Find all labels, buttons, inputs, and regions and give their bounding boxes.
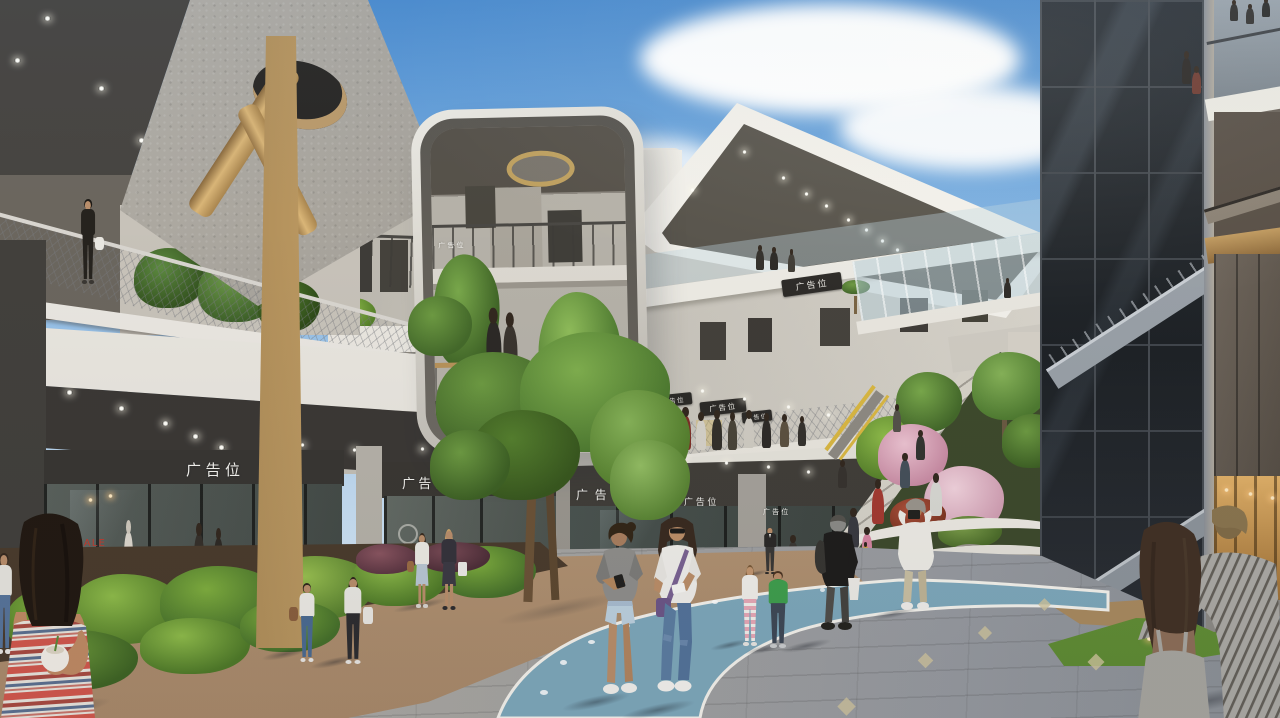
- window: [748, 318, 772, 352]
- downlight-icon: [700, 389, 705, 393]
- window-shopper: [410, 534, 434, 608]
- downlight-icon: [806, 470, 811, 474]
- pedestrian-woman-grey-top: [588, 520, 652, 702]
- ad-sign: 广告位: [438, 240, 466, 251]
- downlight-icon: [804, 192, 809, 196]
- downlight-icon: [98, 86, 105, 91]
- pedestrian-woman-white-top: [644, 514, 710, 714]
- downlight-icon: [826, 413, 831, 417]
- tower-person: [1192, 72, 1201, 94]
- path-speckle: [560, 660, 567, 665]
- balcony-person: [712, 418, 722, 450]
- balcony-person: [762, 420, 771, 448]
- downlight-icon: [192, 434, 199, 439]
- downlight-icon: [420, 447, 425, 451]
- ad-sign: 广告位: [684, 495, 719, 508]
- balcony-person: [696, 420, 706, 450]
- stair-person: [872, 488, 884, 524]
- foreground-couple: [1126, 498, 1280, 718]
- balcony-person: [728, 420, 737, 450]
- warm-downlight-icon: [1248, 492, 1253, 496]
- pedestrian: [294, 584, 320, 662]
- downlight-icon: [66, 390, 73, 395]
- stair-person: [893, 410, 901, 432]
- ad-sign: 广告位: [186, 459, 245, 480]
- downlight-icon: [724, 461, 729, 465]
- walkway-person: [76, 200, 100, 284]
- downlight-icon: [766, 465, 771, 469]
- downlight-icon: [118, 406, 125, 411]
- warm-downlight-icon: [88, 498, 93, 502]
- balcony-person: [780, 421, 789, 447]
- child-girl: [736, 566, 764, 646]
- mall-courtyard-render: 广告位 广告位 广告位 广告位 广告位: [0, 0, 1280, 718]
- window-shopper: [436, 530, 462, 610]
- balcony-person: [770, 252, 778, 270]
- path-speckle: [712, 600, 718, 604]
- balcony-person: [756, 250, 764, 270]
- path-speckle: [540, 690, 548, 695]
- palm-trunk: [854, 296, 857, 314]
- balcony-person: [788, 254, 795, 272]
- downlight-icon: [824, 204, 829, 208]
- stair-person: [838, 466, 847, 488]
- downlight-icon: [846, 218, 851, 222]
- warm-downlight-icon: [1224, 488, 1229, 492]
- walkway-person: [1246, 8, 1254, 24]
- window: [700, 322, 726, 360]
- frame-window: [465, 186, 496, 229]
- walkway-person: [1262, 2, 1270, 17]
- downlight-icon: [742, 397, 747, 401]
- foreground-woman-coconut: [0, 512, 108, 718]
- balcony-person: [798, 422, 806, 446]
- window: [820, 308, 850, 346]
- balcony-person: [744, 418, 754, 448]
- downlight-icon: [690, 188, 695, 192]
- downlight-icon: [786, 405, 791, 409]
- stair-person: [900, 460, 910, 488]
- downlight-icon: [742, 150, 747, 154]
- bridge-person: [1004, 282, 1011, 298]
- stair-person: [916, 436, 925, 460]
- right-mid-mullions: [1214, 254, 1280, 480]
- child-boy: [762, 572, 794, 648]
- tower-person: [1182, 58, 1191, 84]
- pedestrian-photographer: [892, 496, 936, 616]
- downlight-icon: [14, 58, 21, 63]
- pedestrian: [338, 578, 368, 664]
- walkway-person: [1230, 4, 1238, 21]
- downlight-icon: [162, 421, 169, 426]
- warm-downlight-icon: [108, 494, 113, 498]
- downlight-icon: [44, 16, 51, 21]
- pedestrian-man-backpack: [812, 514, 860, 638]
- downlight-icon: [781, 176, 786, 180]
- ad-sign: 广告位: [763, 507, 790, 517]
